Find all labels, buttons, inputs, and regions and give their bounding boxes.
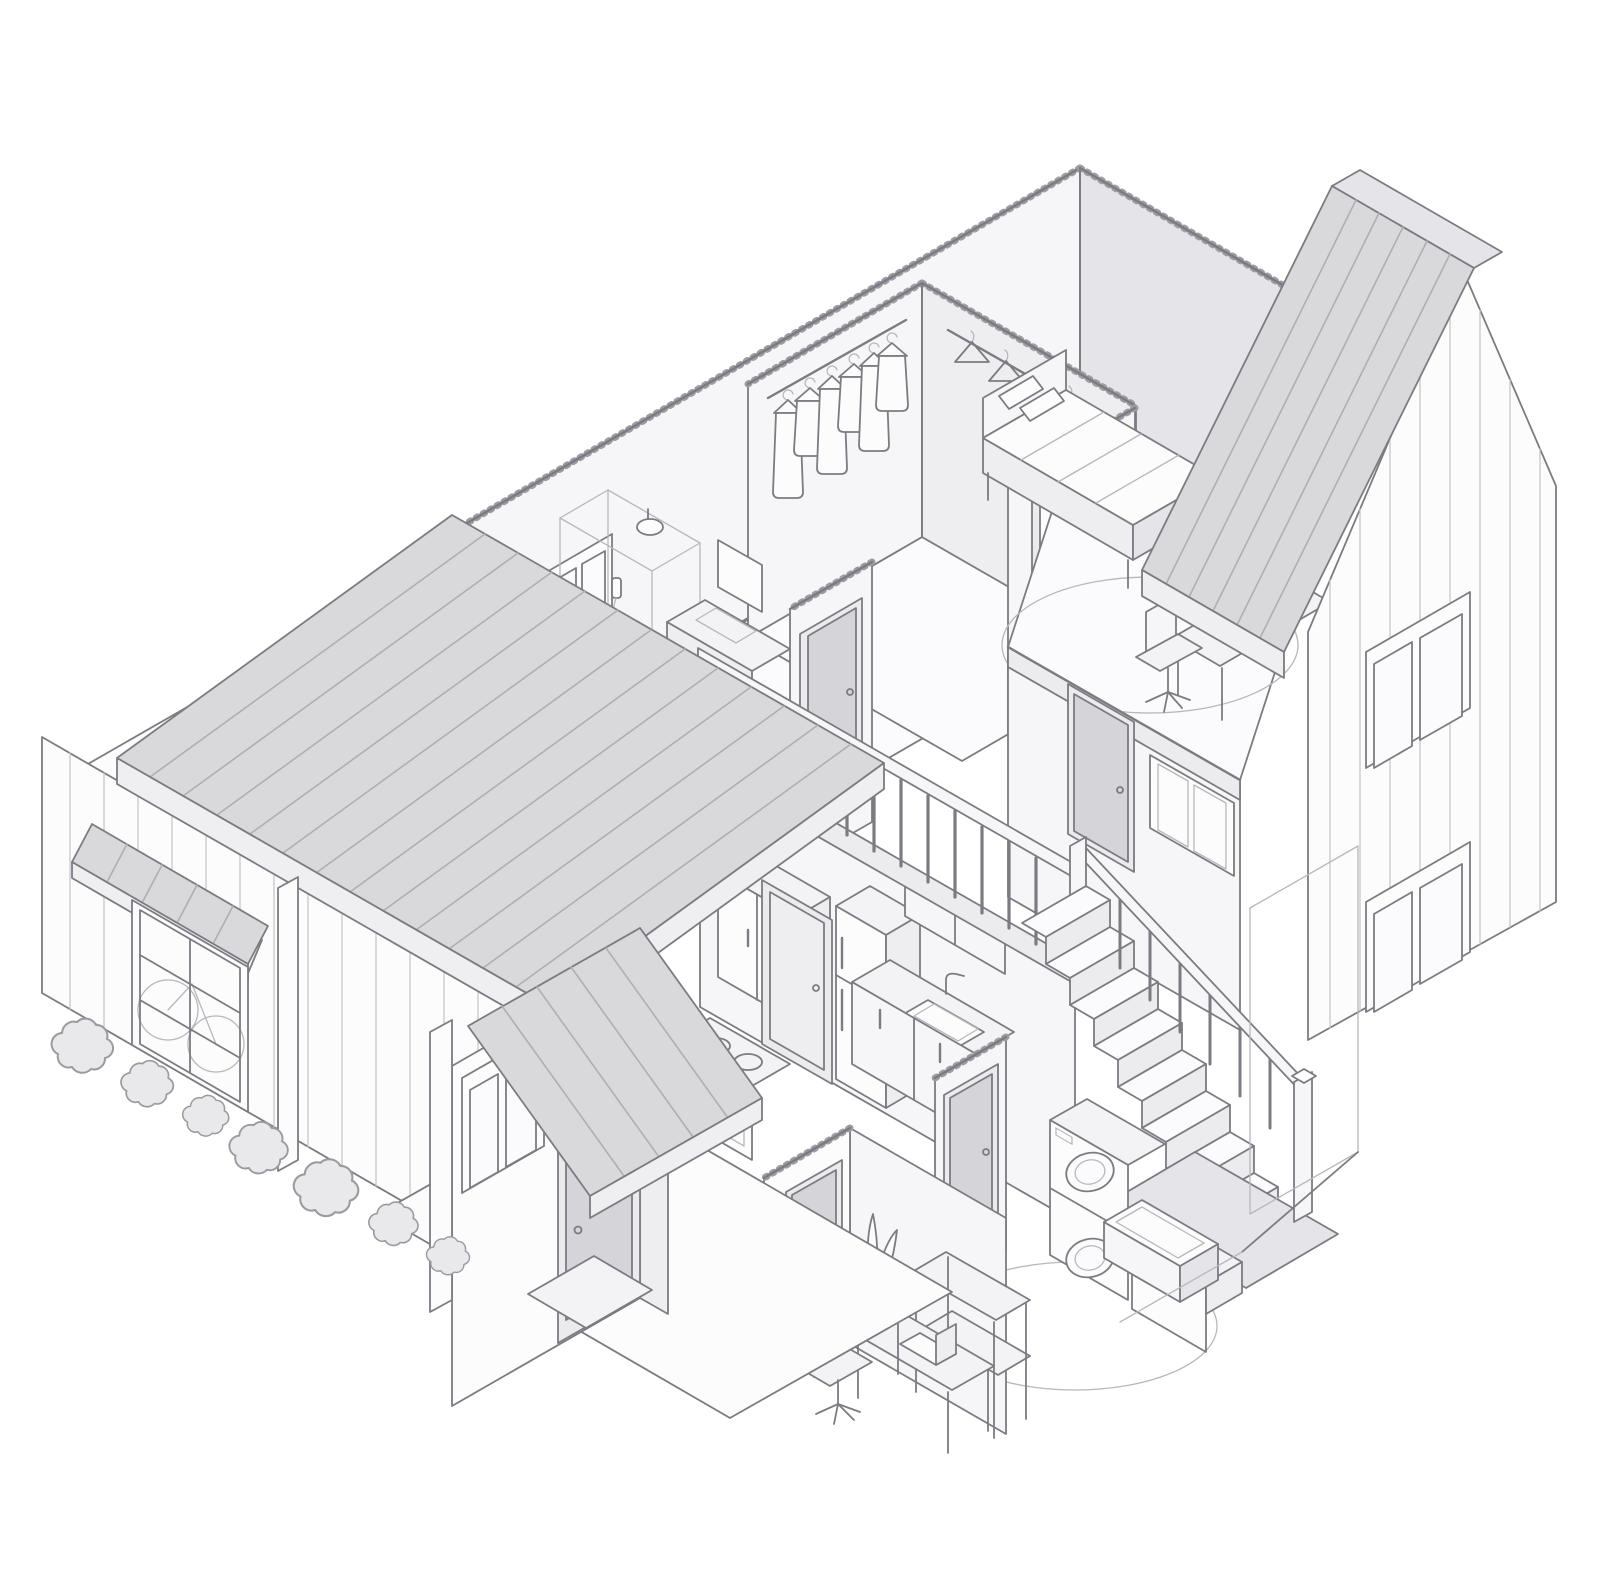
shrub bbox=[369, 1202, 418, 1245]
shrub bbox=[121, 1061, 173, 1107]
isometric-house-illustration: Isometric cutaway illustration of a two-… bbox=[0, 0, 1600, 1591]
shrub bbox=[52, 1019, 114, 1073]
house-cutaway-svg: Isometric cutaway illustration of a two-… bbox=[0, 0, 1600, 1591]
shrub bbox=[294, 1159, 359, 1216]
eave-post bbox=[278, 877, 298, 1171]
shrub bbox=[183, 1095, 229, 1136]
shrub bbox=[229, 1122, 287, 1173]
